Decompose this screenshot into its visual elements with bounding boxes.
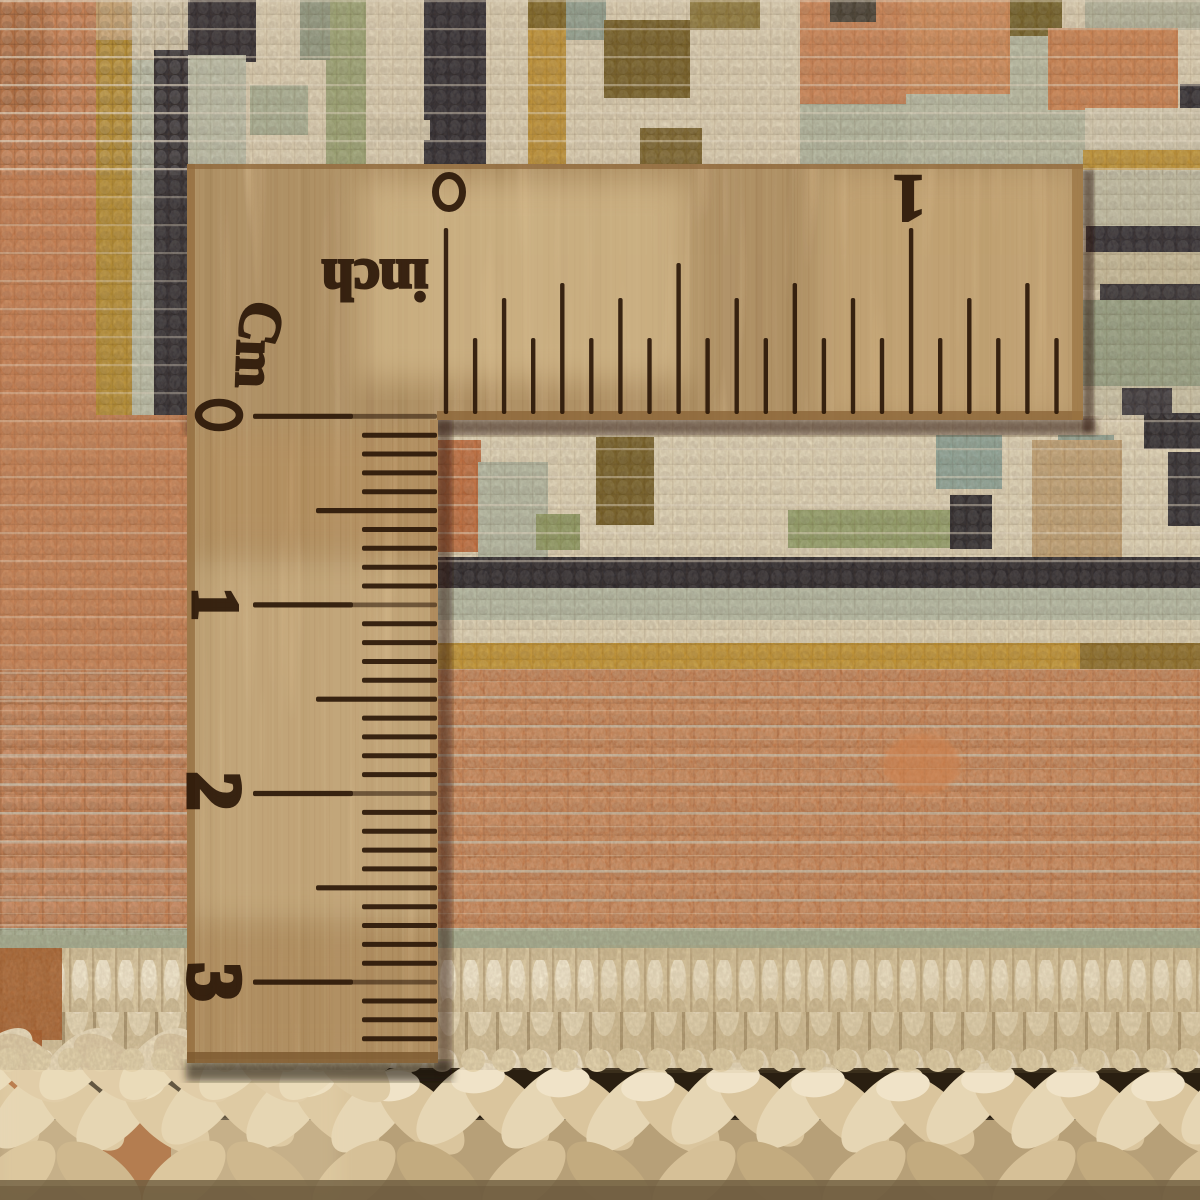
svg-text:1: 1 [179,588,252,621]
svg-text:inch: inch [322,248,428,313]
svg-text:1: 1 [892,161,926,237]
svg-text:m: m [223,339,290,390]
svg-text:2: 2 [172,772,256,810]
svg-text:3: 3 [172,963,256,1001]
